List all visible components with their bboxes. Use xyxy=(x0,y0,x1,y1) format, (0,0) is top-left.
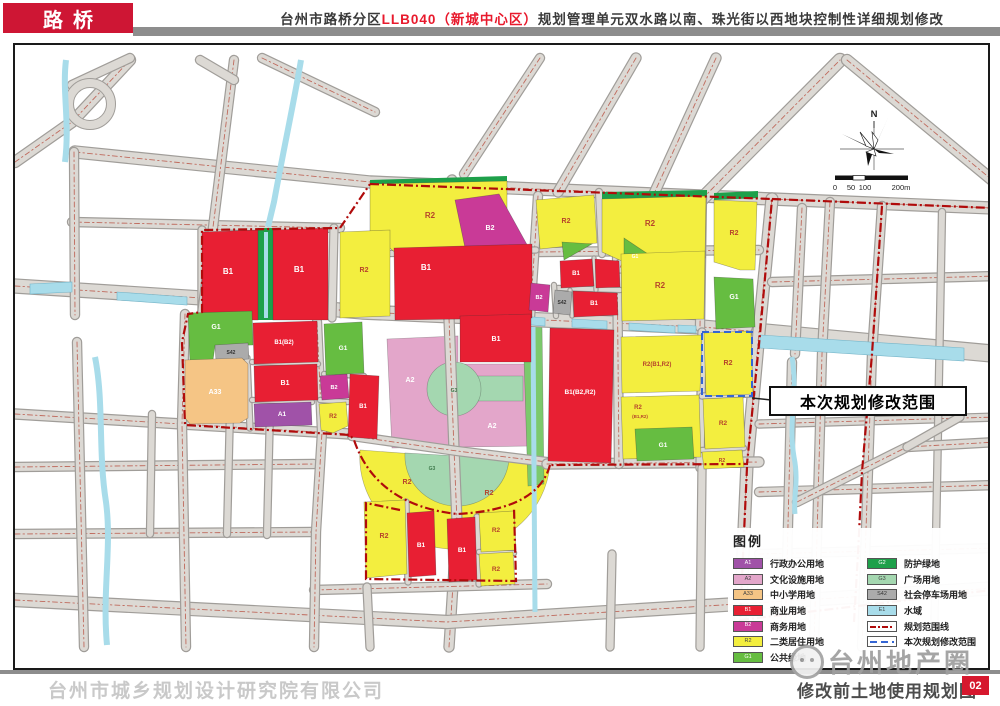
block-label: S42 xyxy=(558,300,567,306)
road xyxy=(320,400,348,402)
block-label: R2 xyxy=(719,420,728,427)
road xyxy=(367,587,370,647)
road xyxy=(700,468,702,647)
legend-item: 规划范围线 xyxy=(867,618,985,634)
modify-range-callout: 本次规划修改范围 xyxy=(769,386,967,416)
legend-item: B1商业用地 xyxy=(733,603,867,619)
legend-label: 商业用地 xyxy=(770,604,806,617)
road xyxy=(558,288,620,290)
block-label: A1 xyxy=(278,411,287,418)
legend-swatch: R2 xyxy=(733,636,763,647)
legend-swatch: B2 xyxy=(733,621,763,632)
scale-label-50: 50 xyxy=(847,183,855,192)
legend-label: 水域 xyxy=(904,604,922,617)
block-label: B1 xyxy=(458,547,467,554)
block-label: G1 xyxy=(211,324,220,331)
block-label: R2 xyxy=(360,267,369,274)
legend-swatch: B1 xyxy=(733,605,763,616)
compass-north-label: N xyxy=(871,109,878,120)
water-strip xyxy=(572,319,607,329)
road xyxy=(267,410,270,535)
legend-swatch: A1 xyxy=(733,558,763,569)
legend-boundary-line-sample xyxy=(867,621,897,632)
road xyxy=(610,554,612,647)
legend-swatch: G3 xyxy=(867,574,897,585)
legend-swatch: A33 xyxy=(733,589,763,600)
block-label: R2 xyxy=(730,230,739,237)
legend-swatch: G1 xyxy=(733,652,763,663)
block-label: B1 xyxy=(590,301,598,307)
scale-label-200m: 200m xyxy=(892,183,911,192)
legend-item: A33中小学用地 xyxy=(733,587,867,603)
block-label: A2 xyxy=(406,377,415,384)
block-label: A2 xyxy=(488,423,497,430)
legend-label: 中小学用地 xyxy=(770,588,815,601)
block-label: R2 xyxy=(485,490,494,497)
district-tab: 路桥 xyxy=(3,3,133,33)
block-label: R2 xyxy=(380,533,389,540)
block-label: R2 xyxy=(329,414,337,420)
legend-label: 行政办公用地 xyxy=(770,557,824,570)
block-label: R2 xyxy=(655,281,666,290)
legend-label: 规划范围线 xyxy=(904,620,949,633)
water-strip xyxy=(678,325,696,333)
page-title-red: LLB040（新城中心区） xyxy=(382,8,538,28)
page-title-part1: 台州市路桥分区 xyxy=(280,8,382,28)
block-label: B1 xyxy=(294,265,305,274)
canal xyxy=(65,60,67,162)
road xyxy=(150,414,152,534)
block-label: G3 xyxy=(451,388,458,394)
map-block-B1 xyxy=(595,259,620,288)
legend-label: 商务用地 xyxy=(770,620,806,633)
block-label: G1 xyxy=(632,254,639,260)
legend-item: A1行政办公用地 xyxy=(733,556,867,572)
road xyxy=(599,192,602,254)
block-label: B1 xyxy=(492,336,501,343)
legend-title: 图例 xyxy=(733,531,985,550)
north-compass-icon: N xyxy=(840,109,904,170)
legend-label: 文化设施用地 xyxy=(770,573,824,586)
legend-label: 社会停车场用地 xyxy=(904,588,967,601)
block-label: R2 xyxy=(634,405,642,411)
canal xyxy=(268,60,301,227)
legend-item: G2防护绿地 xyxy=(867,556,985,572)
legend-swatch: G2 xyxy=(867,558,897,569)
design-institute-name: 台州市城乡规划设计研究院有限公司 xyxy=(48,676,384,703)
map-block-G1 xyxy=(714,277,755,329)
legend-swatch: S42 xyxy=(867,589,897,600)
page-number-badge: 02 xyxy=(962,676,989,695)
block-label: R2 xyxy=(562,218,571,225)
planning-map-page: 路桥 台州市路桥分区LLB040（新城中心区）规划管理单元双水路以南、珠光街以西… xyxy=(0,0,1000,706)
block-label: G1 xyxy=(659,442,668,449)
block-label: R2 xyxy=(492,566,501,573)
block-label: G1 xyxy=(729,294,738,301)
block-label: R2 xyxy=(425,211,436,220)
block-label: B1 xyxy=(281,380,290,387)
legend-item: B2商务用地 xyxy=(733,618,867,634)
scale-label-100: 100 xyxy=(859,183,872,192)
canal xyxy=(533,327,535,612)
block-label: B2 xyxy=(330,385,337,391)
legend-item: G3广场用地 xyxy=(867,572,985,588)
legend-label: 防护绿地 xyxy=(904,557,940,570)
block-label: A33 xyxy=(209,389,222,396)
block-label: R2 xyxy=(645,219,656,228)
map-block-B1 xyxy=(273,228,328,320)
block-label: R2(B1,R2) xyxy=(643,362,672,368)
legend-item: A2文化设施用地 xyxy=(733,572,867,588)
page-title-part2: 规划管理单元双水路以南、珠光街以西地块控制性详细规划修改 xyxy=(538,8,944,28)
scale-bar: 0 50 100 200m xyxy=(833,176,910,193)
block-label: B1 xyxy=(421,263,432,272)
block-label: B1 xyxy=(359,404,367,410)
scale-label-0: 0 xyxy=(833,183,837,192)
legend-item: S42社会停车场用地 xyxy=(867,587,985,603)
block-label: B1(B2,R2) xyxy=(564,389,595,396)
legend-swatch: E1 xyxy=(867,605,897,616)
block-label: G3 xyxy=(429,466,436,472)
legend-item: E1水域 xyxy=(867,603,985,619)
page-title: 台州市路桥分区LLB040（新城中心区）规划管理单元双水路以南、珠光街以西地块控… xyxy=(230,7,994,29)
block-label: S42 xyxy=(227,350,236,356)
block-label: B1(B2) xyxy=(274,340,293,346)
water-strip xyxy=(30,282,72,294)
road xyxy=(332,228,334,318)
block-label: B2 xyxy=(486,225,495,232)
block-label: R2 xyxy=(403,479,412,486)
block-label: R2 xyxy=(492,527,501,534)
block-label: B1 xyxy=(572,271,580,277)
block-label: B2 xyxy=(535,295,542,301)
block-label: (B1,R2) xyxy=(632,414,648,419)
map-block-B1 xyxy=(394,244,532,320)
watermark-text: 台州地产圈 xyxy=(828,643,973,680)
legend-label: 广场用地 xyxy=(904,573,940,586)
block-label: B1 xyxy=(223,267,234,276)
watermark-logo-icon xyxy=(790,645,824,679)
watermark: 台州地产圈 xyxy=(790,643,973,680)
sheet-title: 修改前土地使用规划图 xyxy=(797,677,977,702)
block-label: R2 xyxy=(724,360,733,367)
block-label: G1 xyxy=(339,345,348,352)
map-block-R2 xyxy=(340,230,390,318)
block-label: B1 xyxy=(417,542,426,549)
legend-swatch: A2 xyxy=(733,574,763,585)
